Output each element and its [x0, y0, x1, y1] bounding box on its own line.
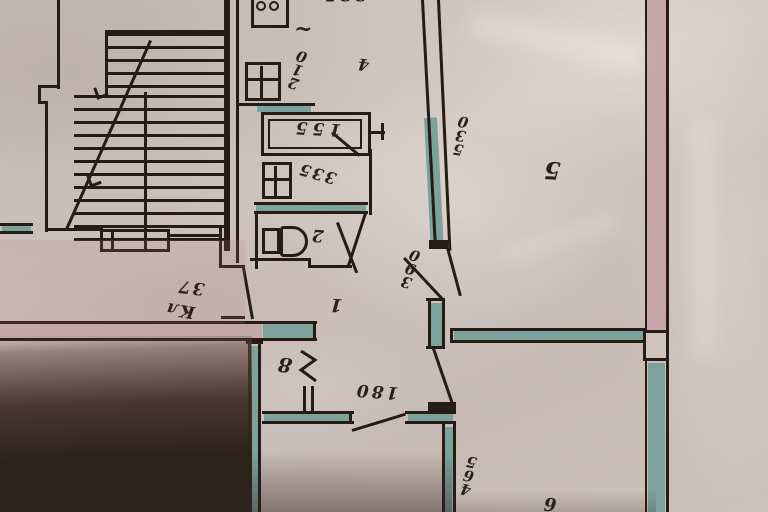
wall-segment: [428, 300, 431, 349]
hall-door-swing: [446, 247, 462, 296]
hall-opening-dimension: 180: [353, 380, 399, 400]
stair-landing-line: [111, 230, 114, 252]
paper-sheen: [690, 120, 716, 360]
room-6-number: 6: [543, 494, 557, 512]
accordion-door-icon: [297, 349, 319, 387]
wall-room6-left: [442, 424, 445, 512]
wall-segment-cap: [426, 298, 445, 301]
wall-right-fill-lower: [648, 363, 665, 512]
wall-stairwell-left-jog: [38, 85, 60, 88]
wall-closet-end: [313, 321, 316, 341]
wall-stairwell-left-lower: [45, 101, 48, 232]
wall-room8-top-fill: [263, 324, 314, 338]
kitchen-sink-cross: [248, 78, 279, 81]
stove-burner-icon: [269, 1, 279, 11]
wall-bottom-left-fill: [264, 414, 352, 421]
room-kitchen-number: 4: [357, 55, 370, 72]
wall-horizontal-bearing: [452, 340, 650, 343]
wall-bottom-right: [405, 421, 456, 424]
paper-sheen: [470, 13, 641, 70]
wall-left-bearing: [248, 343, 251, 512]
wall-left-bearing: [258, 343, 261, 512]
wall-room6-left-fill: [445, 427, 453, 512]
wall-bath-right: [369, 149, 372, 215]
floorplan-photo: 155 335 2 210 4 ~ 335 37 Кл 1 8 180 390 …: [0, 0, 768, 512]
bath-sink-cross: [265, 178, 289, 181]
closet-area: 37: [176, 276, 206, 296]
wall-horizontal-bearing-fill: [454, 331, 647, 340]
wall-wc-bottom: [308, 265, 352, 268]
hall-wall-dimension: 390: [397, 246, 422, 289]
room5-wall-dimension: 530: [450, 113, 470, 156]
wall-bottom-left: [262, 421, 354, 424]
wall-room6-left: [453, 424, 456, 512]
stove-burner-icon: [256, 1, 266, 11]
bath-sink-cross: [274, 166, 277, 196]
wall-room8-right: [303, 386, 306, 414]
entry-door-leaf: [242, 267, 254, 319]
wall-right-fill-upper: [647, 0, 666, 330]
wall-wc-bottom: [250, 258, 310, 261]
wall-closet-top: [0, 321, 317, 324]
cut-off-dimension: 335: [322, 0, 367, 2]
kitchen-dimension: 210: [284, 47, 309, 90]
room-5-number: 5: [543, 158, 561, 183]
wall-stairwell-right: [227, 0, 230, 251]
stair-stringer-middle: [144, 92, 147, 251]
wall-bottom-right-fill: [408, 414, 453, 421]
wall-horizontal-bearing-cap: [450, 328, 453, 343]
toilet-bowl-icon: [280, 226, 308, 257]
stair-bottom-edge: [45, 228, 103, 231]
toilet-tank-icon: [262, 228, 280, 254]
window-left: [2, 226, 31, 231]
opening-door-swing: [352, 413, 406, 432]
room-hall-number: 1: [329, 295, 343, 314]
bathtub-tap-icon: [381, 123, 384, 140]
paper-sheen: [500, 212, 619, 264]
wall-left-bearing-cap: [246, 341, 263, 344]
wall-right-outer: [666, 0, 669, 512]
staircase-upper-treads: [105, 33, 225, 95]
wall-left-exterior: [0, 231, 33, 234]
stair-top-edge: [105, 30, 227, 33]
wall-left-bearing-fill: [251, 346, 258, 512]
wall-bottom-left-cap: [349, 411, 352, 424]
wall-bottom-right: [405, 411, 456, 414]
wall-stairwell-left: [57, 0, 60, 89]
wall-right-junction: [643, 330, 669, 361]
wall-closet-bottom: [0, 338, 317, 341]
room-8-number: 8: [277, 354, 294, 376]
wall-segment-fill: [431, 303, 442, 346]
wall-segment: [442, 300, 445, 349]
room6-dimension: 465: [457, 453, 478, 496]
wall-bottom-left: [262, 411, 354, 414]
photo-shadow-bottom-left: [0, 336, 252, 512]
kitchen-sink-icon: [245, 62, 281, 101]
closet-name: Кл: [166, 299, 196, 320]
room6-door-swing: [432, 348, 454, 404]
wall-segment-cap: [426, 346, 445, 349]
kitchen-sink-cross: [260, 66, 263, 98]
wall-horizontal-bearing: [452, 328, 648, 331]
wall-bath-wc: [254, 202, 368, 205]
bath-dimension: 335: [288, 158, 339, 187]
floor-squiggle: ~: [294, 18, 312, 40]
wall-right: [645, 0, 647, 512]
entry-wall: [221, 316, 245, 319]
wall-stairwell-right-outer: [236, 0, 239, 263]
wall-bath-wc: [254, 211, 368, 214]
room-wc-number: 2: [311, 226, 324, 244]
wall-closet-fill: [0, 324, 262, 338]
photo-shadow-bottom-center: [252, 452, 452, 512]
entry-wall: [219, 226, 222, 268]
hall-tint: [0, 240, 245, 324]
wall-room8-right: [311, 386, 314, 414]
stair-bottom-edge: [170, 234, 220, 237]
